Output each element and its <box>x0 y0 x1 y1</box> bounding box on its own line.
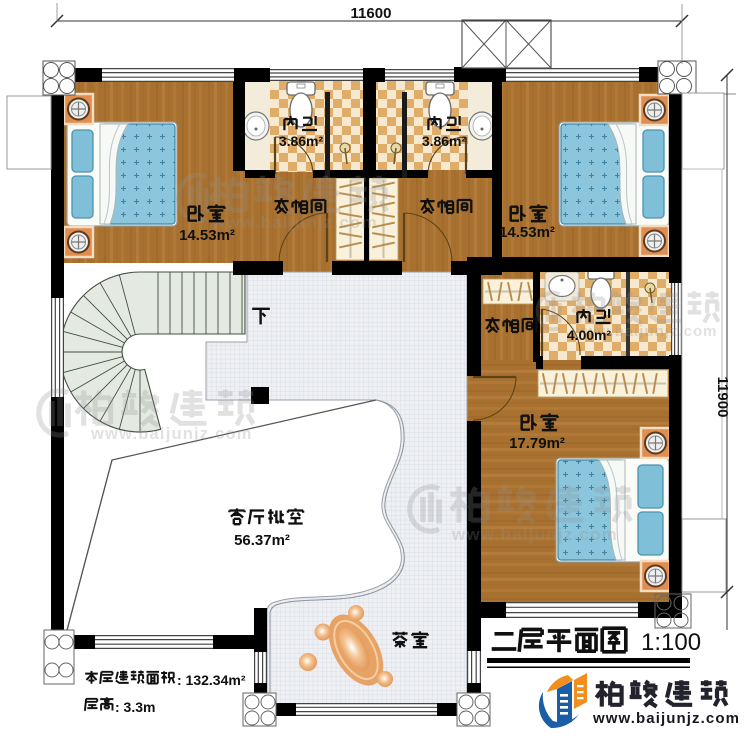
svg-text:4.00m²: 4.00m² <box>567 327 612 343</box>
svg-text:14.53m²: 14.53m² <box>499 224 555 241</box>
svg-text:www.baijunjz.com: www.baijunjz.com <box>211 213 378 232</box>
svg-text:14.53m²: 14.53m² <box>179 227 235 244</box>
svg-text:11600: 11600 <box>351 5 392 22</box>
svg-text:11900: 11900 <box>714 377 731 418</box>
svg-text:www.baijunjz.com: www.baijunjz.com <box>90 425 253 443</box>
svg-text:www.baijunjz.com: www.baijunjz.com <box>592 710 740 727</box>
svg-text:17.79m²: 17.79m² <box>509 435 565 452</box>
svg-text:: 3.3m: : 3.3m <box>115 699 155 715</box>
svg-text:www.baijunjz.com: www.baijunjz.com <box>451 525 618 544</box>
svg-text:: 132.34m²: : 132.34m² <box>177 672 246 688</box>
svg-text:3.86m²: 3.86m² <box>422 133 467 149</box>
svg-text:3.86m²: 3.86m² <box>279 133 324 149</box>
svg-text:1:100: 1:100 <box>641 629 701 656</box>
svg-text:56.37m²: 56.37m² <box>234 532 290 549</box>
